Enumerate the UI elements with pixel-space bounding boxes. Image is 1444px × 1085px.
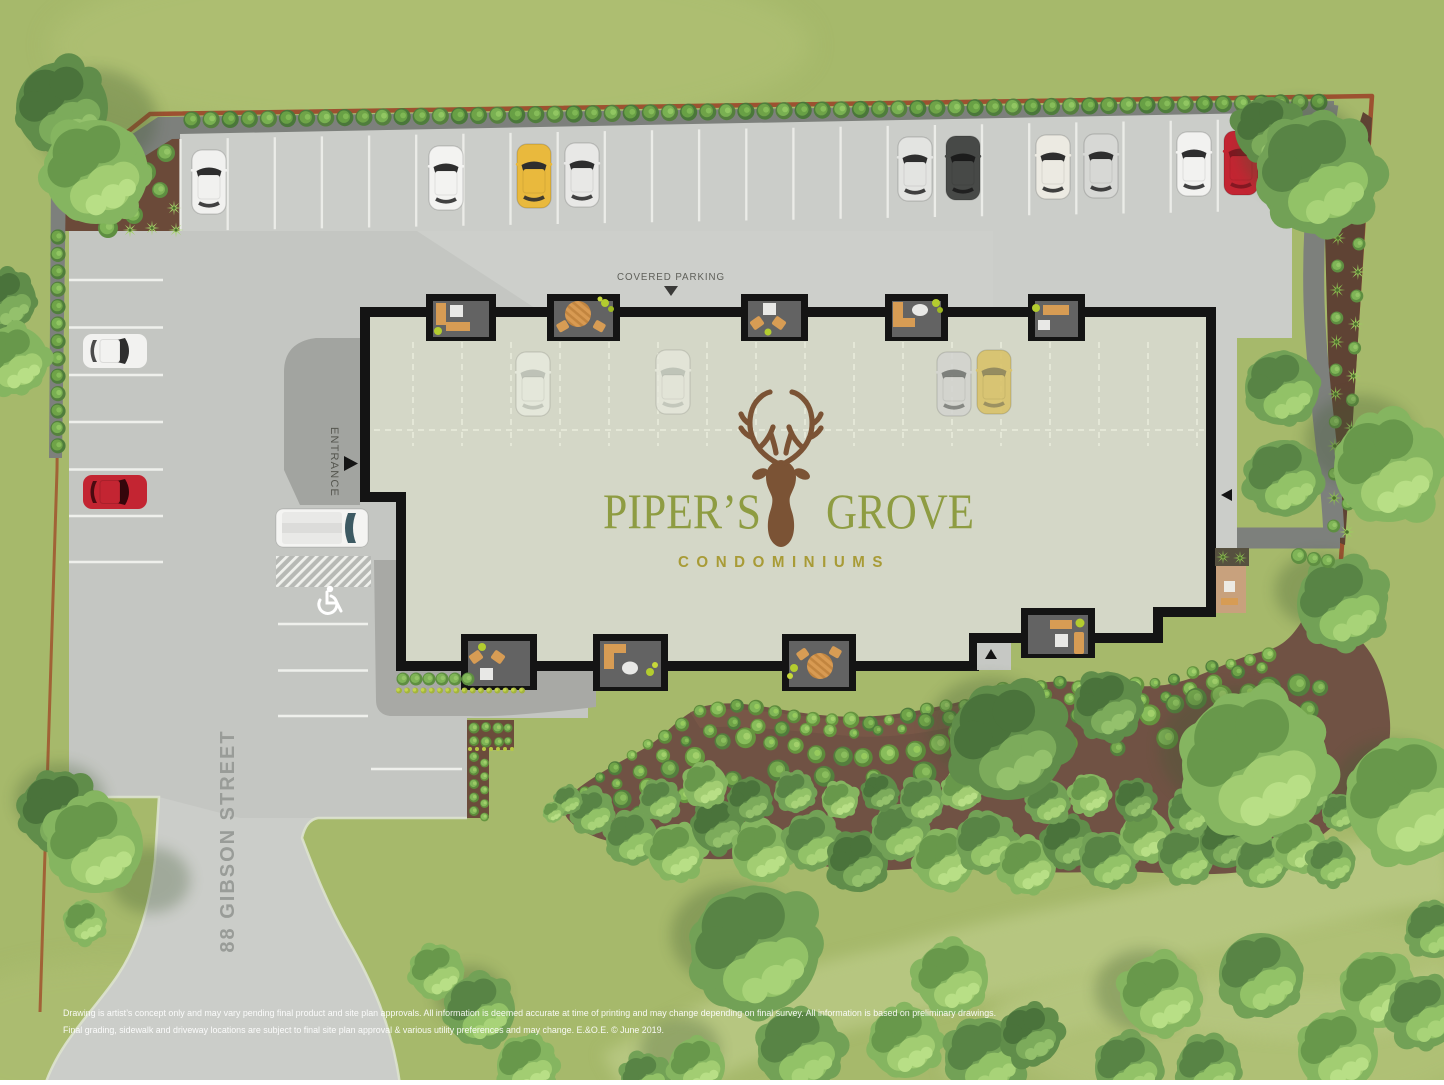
svg-text:88 GIBSON STREET: 88 GIBSON STREET — [217, 729, 239, 952]
svg-text:GROVE: GROVE — [826, 483, 974, 539]
svg-text:PIPER’S: PIPER’S — [603, 483, 761, 539]
svg-text:Final grading, sidewalk and dr: Final grading, sidewalk and driveway loc… — [63, 1025, 664, 1035]
svg-text:COVERED PARKING: COVERED PARKING — [617, 271, 725, 283]
svg-text:ENTRANCE: ENTRANCE — [328, 427, 340, 497]
svg-text:Drawing is artist’s concept on: Drawing is artist’s concept only and may… — [63, 1008, 996, 1018]
svg-text:CONDOMINIUMS: CONDOMINIUMS — [678, 554, 890, 571]
